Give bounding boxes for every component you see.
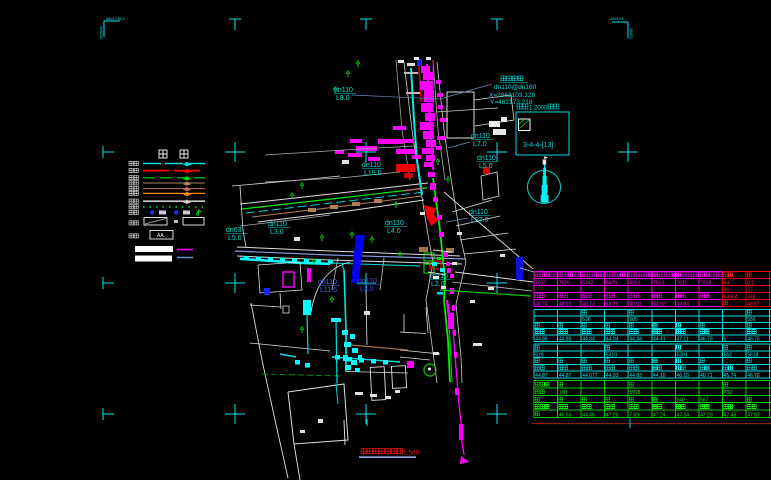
svg-text:dn110: dn110 — [362, 162, 381, 169]
svg-text:48.93: 48.93 — [559, 301, 572, 307]
svg-text:44.92: 44.92 — [653, 301, 666, 307]
svg-text:44.85: 44.85 — [559, 336, 572, 342]
svg-text:5301: 5301 — [677, 352, 688, 358]
svg-text:X=2862103.128: X=2862103.128 — [489, 92, 535, 99]
svg-text:47.46: 47.46 — [724, 412, 737, 418]
svg-text:28621: 28621 — [629, 28, 634, 40]
svg-text:46.63: 46.63 — [559, 412, 572, 418]
svg-text:L4.0: L4.0 — [387, 228, 401, 235]
svg-text:47.29: 47.29 — [700, 412, 713, 418]
svg-text:L3.0: L3.0 — [360, 286, 374, 293]
svg-text:4981: 4981 — [629, 280, 640, 286]
svg-text:585: 585 — [629, 317, 638, 323]
svg-text:44.96: 44.96 — [535, 336, 548, 342]
svg-text:46.71: 46.71 — [700, 373, 713, 379]
svg-text:AA: AA — [157, 233, 164, 239]
svg-text:46.75: 46.75 — [747, 336, 760, 342]
svg-text:L7.0: L7.0 — [473, 141, 487, 148]
svg-text:3-4-4-[13]: 3-4-4-[13] — [523, 142, 553, 149]
svg-text:dn110: dn110 — [334, 87, 353, 94]
svg-text:dn63: dn63 — [226, 227, 242, 234]
svg-text:dn110@dn160: dn110@dn160 — [494, 84, 537, 91]
svg-text:5342: 5342 — [582, 280, 593, 286]
svg-text:7.69: 7.69 — [629, 412, 639, 418]
svg-text:567: 567 — [700, 398, 709, 404]
svg-text:46.78: 46.78 — [747, 373, 760, 379]
svg-text:44.077: 44.077 — [582, 373, 598, 379]
svg-text:47.63: 47.63 — [747, 412, 760, 418]
svg-text:dn110: dn110 — [358, 278, 377, 285]
svg-text:5618: 5618 — [747, 352, 758, 358]
svg-text:0.1: 0.1 — [747, 280, 754, 286]
svg-text:48.67: 48.67 — [747, 301, 760, 307]
svg-text:dn110: dn110 — [469, 209, 488, 216]
svg-text:47.34: 47.34 — [677, 412, 690, 418]
svg-text:44.41: 44.41 — [653, 336, 666, 342]
svg-text:46.79: 46.79 — [700, 336, 713, 342]
svg-text:46.10: 46.10 — [677, 373, 690, 379]
svg-text:1:2000: 1:2000 — [529, 106, 548, 112]
svg-text:286210: 286210 — [99, 26, 104, 40]
svg-text:o: o — [724, 336, 727, 342]
svg-text:702: 702 — [724, 390, 733, 396]
svg-text:5479: 5479 — [606, 280, 617, 286]
svg-text:44.46: 44.46 — [582, 412, 595, 418]
svg-text:7814: 7814 — [700, 280, 711, 286]
svg-text:48.73: 48.73 — [582, 301, 595, 307]
svg-text:7812: 7812 — [677, 280, 688, 286]
svg-text:dn110: dn110 — [477, 155, 496, 162]
svg-text:L8.0: L8.0 — [336, 95, 350, 102]
svg-text:5310: 5310 — [606, 352, 617, 358]
svg-text:45.74: 45.74 — [724, 373, 737, 379]
svg-text:44.94: 44.94 — [606, 336, 619, 342]
svg-text:47.11: 47.11 — [677, 336, 689, 342]
svg-text:L27.0: L27.0 — [471, 217, 489, 224]
svg-text:37: 37 — [747, 287, 753, 293]
svg-text:L5.0: L5.0 — [228, 235, 242, 242]
svg-text:dn110: dn110 — [385, 220, 404, 227]
svg-text:Y=482173.218: Y=482173.218 — [490, 99, 533, 106]
svg-text:48.74: 48.74 — [535, 301, 548, 307]
svg-text:482173: 482173 — [610, 16, 624, 21]
svg-text:47.24: 47.24 — [653, 412, 666, 418]
svg-text:536: 536 — [582, 317, 591, 323]
svg-text:L19.0: L19.0 — [364, 170, 382, 177]
svg-text:48.76: 48.76 — [606, 301, 619, 307]
svg-text:44.84: 44.84 — [582, 336, 595, 342]
svg-text:36: 36 — [724, 287, 730, 293]
svg-text:44.83: 44.83 — [629, 373, 642, 379]
svg-text:L3.0: L3.0 — [270, 229, 284, 236]
svg-text:5928: 5928 — [629, 390, 640, 396]
svg-text:556: 556 — [747, 317, 756, 323]
svg-text:7913: 7913 — [653, 280, 664, 286]
svg-text:348: 348 — [747, 294, 756, 300]
svg-text:44.93: 44.93 — [606, 373, 619, 379]
svg-text:6496A: 6496A — [724, 294, 739, 300]
svg-text:48.81: 48.81 — [629, 301, 642, 307]
svg-text:7625: 7625 — [559, 280, 570, 286]
svg-text:100: 100 — [559, 390, 568, 396]
svg-text:64: 64 — [724, 280, 730, 286]
svg-text:562: 562 — [724, 352, 733, 358]
svg-text:44.87: 44.87 — [559, 373, 572, 379]
svg-text:44.87: 44.87 — [535, 373, 548, 379]
svg-text:47.26: 47.26 — [606, 412, 619, 418]
svg-text:44.84: 44.84 — [677, 301, 690, 307]
svg-text:L11.5: L11.5 — [320, 287, 337, 294]
svg-text:529: 529 — [535, 352, 544, 358]
svg-text:1:500: 1:500 — [403, 450, 420, 457]
svg-text:dn110: dn110 — [471, 133, 490, 140]
svg-text:540: 540 — [677, 398, 686, 404]
svg-text:44.10: 44.10 — [653, 373, 666, 379]
svg-text:7677: 7677 — [535, 280, 546, 286]
svg-text:4821735.2: 4821735.2 — [106, 16, 126, 21]
svg-text:44.84: 44.84 — [629, 336, 642, 342]
svg-text:L5.0: L5.0 — [479, 163, 493, 170]
